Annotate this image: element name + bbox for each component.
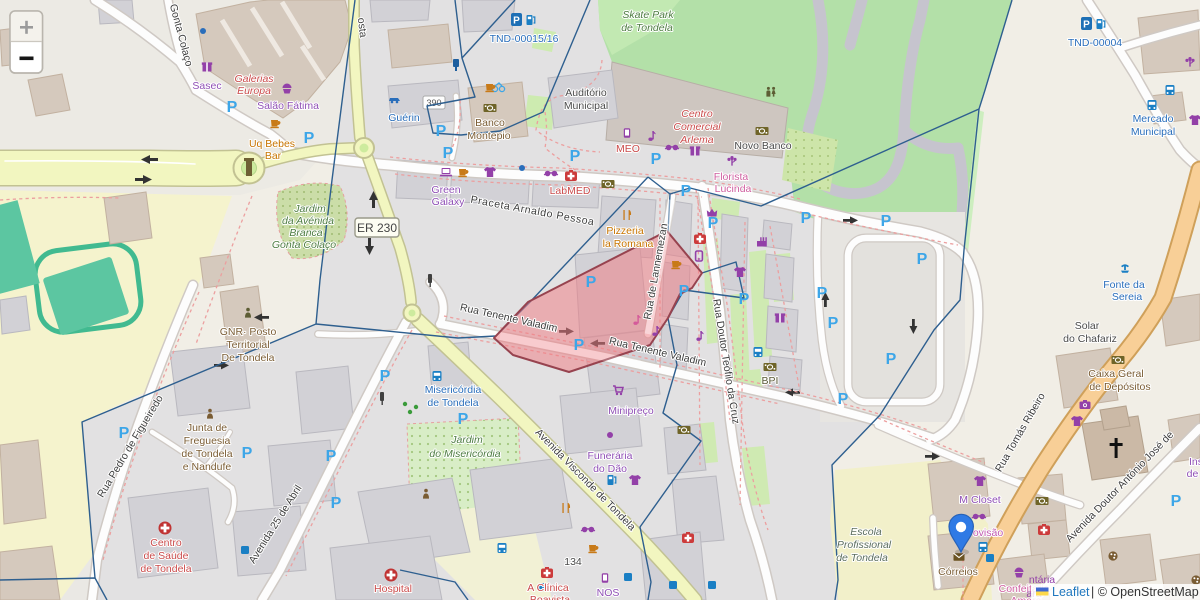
svg-text:De Tondela: De Tondela <box>222 352 275 364</box>
svg-text:de Saúde: de Saúde <box>144 550 189 562</box>
svg-text:Europa: Europa <box>237 85 271 97</box>
svg-text:osta: osta <box>355 17 369 38</box>
svg-text:P: P <box>828 315 839 332</box>
svg-text:Green: Green <box>431 184 460 196</box>
svg-text:P: P <box>739 291 750 308</box>
svg-text:de G: de G <box>1187 468 1200 480</box>
svg-text:Funerária: Funerária <box>588 450 633 462</box>
svg-text:P: P <box>881 213 892 230</box>
svg-text:Jardim: Jardim <box>293 203 326 215</box>
svg-text:LabMED: LabMED <box>550 185 591 197</box>
svg-text:Comercial: Comercial <box>673 121 721 133</box>
svg-text:Sereia: Sereia <box>1112 291 1143 303</box>
svg-text:P: P <box>817 285 828 302</box>
svg-text:P: P <box>708 215 719 232</box>
svg-text:Salão Fátima: Salão Fátima <box>257 100 319 112</box>
svg-text:de Tondela: de Tondela <box>621 22 673 34</box>
svg-text:P: P <box>681 183 692 200</box>
svg-text:| © OpenStreetMap: | © OpenStreetMap <box>1091 585 1199 599</box>
svg-text:Municipal: Municipal <box>564 100 608 112</box>
svg-text:P: P <box>574 337 585 354</box>
svg-text:P: P <box>227 99 238 116</box>
svg-text:Gonta Colaço: Gonta Colaço <box>272 239 336 251</box>
svg-text:134: 134 <box>564 556 582 568</box>
svg-text:P: P <box>458 411 469 428</box>
svg-text:Jardim: Jardim <box>450 434 483 446</box>
svg-text:do Misericórdia: do Misericórdia <box>429 448 500 460</box>
svg-text:GNR· Posto: GNR· Posto <box>220 326 277 338</box>
svg-text:ER 230: ER 230 <box>357 221 397 235</box>
svg-text:A Clínica: A Clínica <box>527 582 569 594</box>
svg-text:P: P <box>1083 20 1090 31</box>
svg-text:P: P <box>304 130 315 147</box>
svg-text:de Depósitos: de Depósitos <box>1089 381 1150 393</box>
svg-text:da Avénida: da Avénida <box>282 215 334 227</box>
svg-text:P: P <box>380 368 391 385</box>
svg-text:M Closet: M Closet <box>959 494 1001 506</box>
svg-text:Solar: Solar <box>1075 320 1100 332</box>
svg-text:P: P <box>838 391 849 408</box>
svg-text:TND-00015/16: TND-00015/16 <box>490 33 559 45</box>
svg-text:de Tondela: de Tondela <box>427 397 478 409</box>
svg-text:Skate Park: Skate Park <box>622 9 674 21</box>
svg-text:Montepio: Montepio <box>467 130 510 142</box>
svg-text:P: P <box>436 123 447 140</box>
svg-text:Sasec: Sasec <box>192 80 221 92</box>
svg-text:P: P <box>242 445 253 462</box>
svg-text:Guérin: Guérin <box>388 112 420 124</box>
svg-text:Branca: Branca <box>289 227 322 239</box>
svg-text:do Dão: do Dão <box>593 463 627 475</box>
svg-text:P: P <box>331 495 342 512</box>
svg-text:ovisão: ovisão <box>973 527 1004 539</box>
svg-text:do Chafariz: do Chafariz <box>1063 333 1117 345</box>
svg-text:Centro: Centro <box>681 108 713 120</box>
svg-text:Leaflet: Leaflet <box>1052 585 1090 599</box>
svg-text:Novo Banco: Novo Banco <box>734 140 791 152</box>
svg-text:BPI: BPI <box>762 375 779 387</box>
svg-text:e Nandufe: e Nandufe <box>183 461 232 473</box>
svg-text:Escola: Escola <box>850 526 882 538</box>
svg-text:P: P <box>917 251 928 268</box>
svg-text:Banco: Banco <box>475 117 505 129</box>
svg-text:P: P <box>586 274 597 291</box>
svg-text:Bar: Bar <box>265 150 282 162</box>
svg-text:Misericórdia: Misericórdia <box>425 384 482 396</box>
svg-text:Centro: Centro <box>150 537 182 549</box>
svg-text:Auditório: Auditório <box>565 87 607 99</box>
svg-text:P: P <box>513 16 520 27</box>
svg-text:P: P <box>886 351 897 368</box>
svg-text:Córreios: Córreios <box>938 566 978 578</box>
svg-text:Profissional: Profissional <box>837 539 892 551</box>
svg-text:P: P <box>679 283 690 300</box>
svg-text:P: P <box>1171 493 1182 510</box>
svg-text:Florista: Florista <box>714 171 749 183</box>
svg-text:P: P <box>801 210 812 227</box>
svg-text:la Romana: la Romana <box>603 238 654 250</box>
svg-text:Lucinda: Lucinda <box>715 183 752 195</box>
svg-text:Junta de: Junta de <box>187 422 227 434</box>
svg-text:P: P <box>570 148 581 165</box>
svg-text:Minipreço: Minipreço <box>608 405 654 417</box>
svg-text:MEO: MEO <box>616 143 640 155</box>
svg-text:Uq Bebes: Uq Bebes <box>249 138 295 150</box>
svg-text:P: P <box>443 145 454 162</box>
svg-text:P: P <box>651 151 662 168</box>
svg-text:Municipal: Municipal <box>1131 126 1175 138</box>
svg-text:Territorial: Territorial <box>226 339 269 351</box>
svg-text:Galerias: Galerias <box>234 73 274 85</box>
svg-text:Ins: Ins <box>1189 456 1200 468</box>
svg-text:de Tondela: de Tondela <box>181 448 232 460</box>
svg-text:Freguesia: Freguesia <box>184 435 231 447</box>
svg-text:Fonte da: Fonte da <box>1103 279 1145 291</box>
svg-text:NOS: NOS <box>597 587 620 599</box>
svg-text:Boavista: Boavista <box>530 594 570 600</box>
svg-text:TND-00004: TND-00004 <box>1068 37 1122 49</box>
svg-text:de Tondela: de Tondela <box>140 563 191 575</box>
svg-text:Arlema: Arlema <box>679 134 713 146</box>
svg-text:Hospital: Hospital <box>374 583 412 595</box>
svg-text:Galaxy: Galaxy <box>432 196 465 208</box>
svg-text:Caixa Geral: Caixa Geral <box>1088 368 1143 380</box>
svg-text:de Tondela: de Tondela <box>836 552 888 564</box>
svg-text:P: P <box>326 448 337 465</box>
svg-text:Pizzeria: Pizzeria <box>606 225 644 237</box>
svg-text:Mercado: Mercado <box>1133 113 1174 125</box>
